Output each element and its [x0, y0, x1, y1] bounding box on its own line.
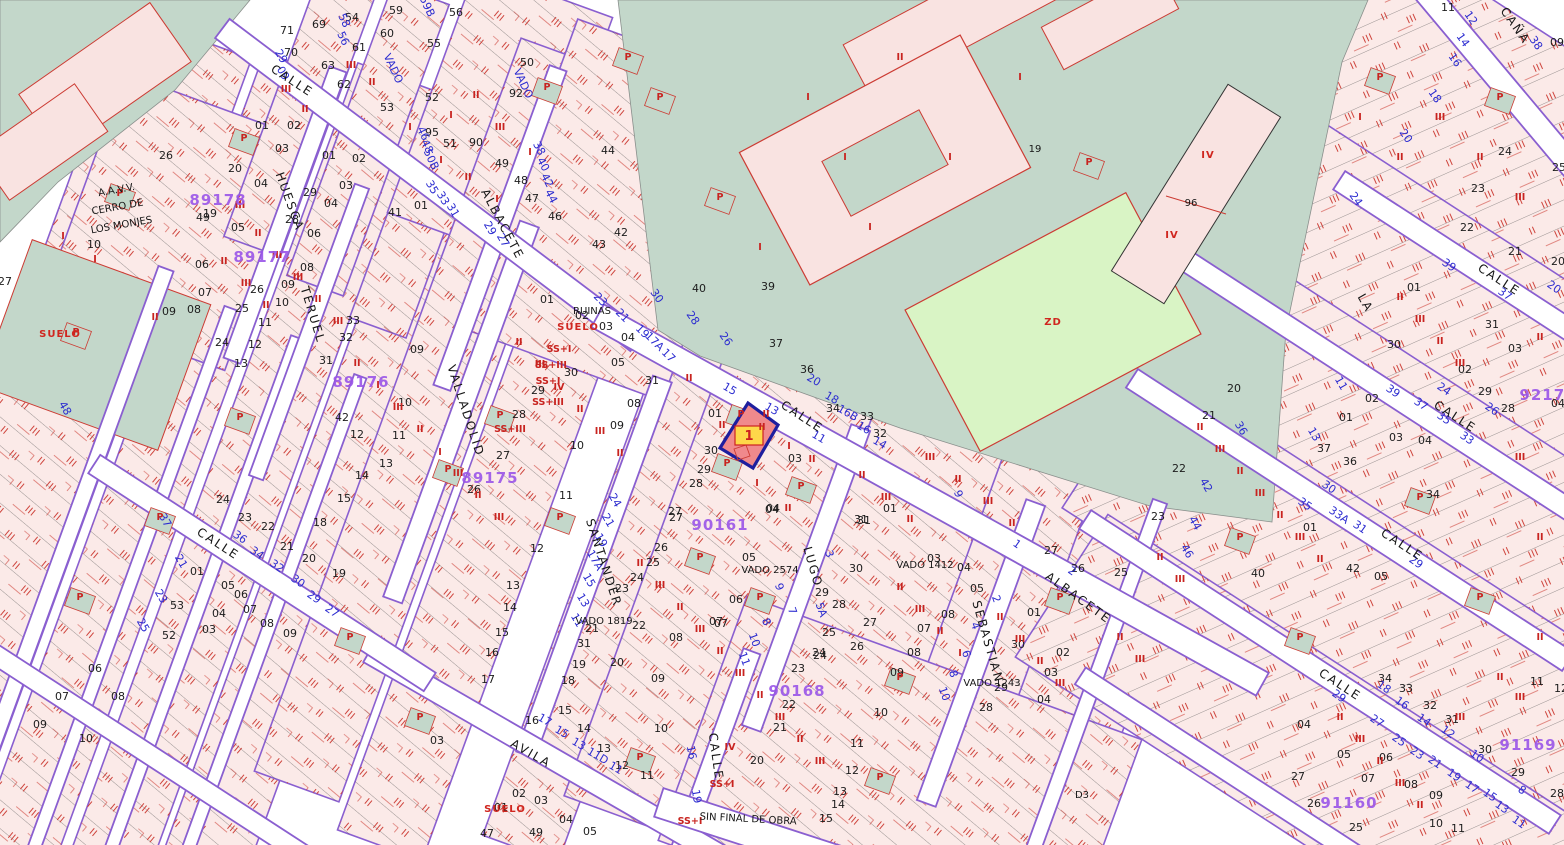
floor-count-label: III [293, 272, 304, 283]
floor-count-label: III [1515, 452, 1526, 463]
block-id-label: 89177 [233, 248, 290, 266]
parcel-number-label: 13 [234, 357, 248, 370]
parcel-number-label: 19 [332, 567, 346, 580]
floor-count-label: II [220, 256, 227, 267]
parcel-number-label: 12 [350, 428, 364, 441]
floor-count-label: III [1255, 488, 1266, 499]
parcel-number-label: 03 [1508, 342, 1522, 355]
floor-count-label: SS+III [532, 397, 564, 408]
parcel-number-label: 21 [1202, 409, 1216, 422]
parcel-number-label: 42 [335, 411, 349, 424]
parcel-number-label: 30 [1387, 338, 1401, 351]
floor-count-label: II [464, 172, 471, 183]
floor-count-label: I [787, 441, 791, 452]
parcel-number-label: 31 [1485, 318, 1499, 331]
parcel-number-label: 03 [430, 734, 444, 747]
parcel-number-label: 09 [410, 343, 424, 356]
floor-count-label: II [758, 422, 765, 433]
floor-count-label: I [806, 92, 810, 103]
floor-count-label: II [1196, 422, 1203, 433]
parcel-number-label: 23 [1151, 510, 1165, 523]
block-id-label: 89176 [332, 373, 389, 391]
parcel-number-label: 05 [583, 825, 597, 838]
parcel-number-label: 24 [216, 493, 230, 506]
floor-count-label: I [528, 147, 532, 158]
parcel-number-label: 10 [79, 732, 93, 745]
parcel-number-label: 14 [503, 601, 517, 614]
parcel-number-label: 10 [87, 238, 101, 251]
floor-count-label: II [756, 690, 763, 701]
parcel-number-label: 08 [1404, 778, 1418, 791]
parcel-number-label: 07 [55, 690, 69, 703]
floor-count-label: III [346, 60, 357, 71]
parcel-number-label: 26 [654, 541, 668, 554]
floor-count-label: P [1497, 92, 1504, 103]
floor-count-label: II [1476, 152, 1483, 163]
parcel-number-label: 31 [577, 637, 591, 650]
parcel-number-label: 49 [196, 211, 210, 224]
floor-count-label: P [1417, 492, 1424, 503]
floor-count-label: II [474, 490, 481, 501]
floor-count-label: P [657, 92, 664, 103]
parcel-number-label: 07 [1361, 772, 1375, 785]
parcel-number-label: 26 [1307, 797, 1321, 810]
floor-count-label: II [515, 337, 522, 348]
floor-count-label: I [449, 110, 453, 121]
parcel-number-label: 11 [258, 316, 272, 329]
floor-count-label: III [494, 512, 505, 523]
parcel-number-label: 24 [813, 649, 827, 662]
parcel-number-label: 40 [1251, 567, 1265, 580]
parcel-number-label: 33 [346, 314, 360, 327]
parcel-number-label: 04 [559, 813, 573, 826]
floor-count-label: II [896, 582, 903, 593]
parcel-number-label: 42 [614, 226, 628, 239]
block-id-label: 91160 [1320, 794, 1377, 812]
parcel-number-label: 23 [1471, 182, 1485, 195]
parcel-number-label: 21 [280, 540, 294, 553]
parcel-number-label: 23 [238, 511, 252, 524]
special-red-label: SUELO [39, 329, 81, 340]
parcel-number-label: 22 [261, 520, 275, 533]
parcel-number-label: 06 [729, 593, 743, 606]
street-number-label: 16 [684, 744, 699, 760]
floor-count-label: II [1536, 332, 1543, 343]
parcel-number-label: 25 [646, 556, 660, 569]
floor-count-label: II [1236, 466, 1243, 477]
floor-count-label: II [1336, 712, 1343, 723]
floor-count-label: IV [725, 742, 737, 753]
floor-count-label: I [438, 447, 442, 458]
floor-count-label: I [958, 648, 962, 659]
parcel-number-label: 25 [822, 626, 836, 639]
parcel-number-label: 08 [187, 303, 201, 316]
special-red-label: SUELO [557, 322, 599, 333]
floor-count-label: P [625, 52, 632, 63]
parcel-number-label: 56 [449, 6, 463, 19]
parcel-number-label: 10 [275, 296, 289, 309]
parcel-number-label: 31 [645, 374, 659, 387]
floor-count-label: II [353, 358, 360, 369]
parcel-number-label: 03 [275, 142, 289, 155]
floor-count-label: II [1396, 152, 1403, 163]
special-red-label: SUELO [484, 804, 526, 815]
parcel-number-label: 08 [111, 690, 125, 703]
parcel-number-label: 11 [1451, 822, 1465, 835]
parcel-number-label: 59 [389, 4, 403, 17]
floor-count-label: I [868, 222, 872, 233]
parcel-number-label: 25 [1552, 161, 1564, 174]
parcel-number-label: 01 [1027, 606, 1041, 619]
parcel-number-label: 05 [231, 221, 245, 234]
parcel-number-label: 28 [512, 408, 526, 421]
floor-count-label: I [93, 254, 97, 265]
floor-count-label: II [676, 602, 683, 613]
parcel-number-label: 11 [640, 769, 654, 782]
parcel-number-label: 48 [514, 174, 528, 187]
parcel-number-label: 02 [512, 787, 526, 800]
parcel-number-label: 31 [857, 514, 871, 527]
map-annotation-label: VADO 1243 [963, 678, 1020, 689]
floor-count-label: II [1156, 552, 1163, 563]
parcel-number-label: 09 [33, 718, 47, 731]
floor-count-label: P [798, 481, 805, 492]
block-id-label: 92170 [1519, 386, 1564, 404]
parcel-number-label: 40 [692, 282, 706, 295]
special-red-label: IV [1165, 230, 1178, 241]
floor-count-label: P [77, 592, 84, 603]
parcel-number-label: 07 [243, 603, 257, 616]
parcel-number-label: 26 [250, 283, 264, 296]
parcel-number-label: 44 [601, 144, 615, 157]
parcel-number-label: 25 [1349, 821, 1363, 834]
floor-count-label: III [1515, 192, 1526, 203]
parcel-number-label: 26 [159, 149, 173, 162]
floor-count-label: P [724, 458, 731, 469]
parcel-number-label: 18 [561, 674, 575, 687]
parcel-number-label: 01 [414, 199, 428, 212]
floor-count-label: SS+III [535, 360, 567, 371]
floor-count-label: II [1036, 656, 1043, 667]
parcel-number-label: 06 [195, 258, 209, 271]
parcel-number-label: 20 [302, 552, 316, 565]
parcel-number-label: 61 [352, 41, 366, 54]
floor-count-label: II [1496, 672, 1503, 683]
floor-count-label: II [1276, 510, 1283, 521]
floor-count-label: II [636, 558, 643, 569]
floor-count-label: I [948, 152, 952, 163]
parcel-number-label: 37 [769, 337, 783, 350]
block-id-label: 91169 [1499, 736, 1556, 754]
parcel-number-label: 21 [1508, 245, 1522, 258]
floor-count-label: II [1316, 554, 1323, 565]
floor-count-label: III [1215, 444, 1226, 455]
parcel-number-label: 20 [610, 656, 624, 669]
parcel-number-label: 01 [322, 149, 336, 162]
parcel-number-label: 11 [559, 489, 573, 502]
parcel-number-label: 29 [303, 186, 317, 199]
special-red-label: IV [1201, 150, 1214, 161]
map-annotation-label: RUINAS [573, 306, 611, 317]
floor-count-label: II [616, 448, 623, 459]
floor-count-label: II [262, 300, 269, 311]
parcel-number-label: 05 [611, 356, 625, 369]
floor-count-label: P [237, 412, 244, 423]
parcel-number-label: 09 [283, 627, 297, 640]
floor-count-label: P [877, 772, 884, 783]
parcel-number-label: 47 [525, 192, 539, 205]
parcel-number-label: 17 [481, 673, 495, 686]
parcel-number-label: 02 [1365, 392, 1379, 405]
parcel-number-label: 20 [1227, 382, 1241, 395]
parcel-number-label: 15 [337, 492, 351, 505]
floor-count-label: III [393, 402, 404, 413]
parcel-number-label: 04 [324, 197, 338, 210]
parcel-number-label: 08 [627, 397, 641, 410]
parcel-number-label: 09 [162, 305, 176, 318]
parcel-number-label: 01 [708, 407, 722, 420]
parcel-number-label: 37 [1317, 442, 1331, 455]
parcel-number-label: 27 [863, 616, 877, 629]
floor-count-label: III [695, 624, 706, 635]
floor-count-label: II [716, 646, 723, 657]
parcel-number-label: 12 [248, 338, 262, 351]
parcel-number-label: 11 [1530, 675, 1544, 688]
floor-count-label: III [1295, 532, 1306, 543]
floor-count-label: III [815, 756, 826, 767]
floor-count-label: P [1086, 157, 1093, 168]
floor-count-label: III [1415, 314, 1426, 325]
parcel-number-label: 63 [321, 59, 335, 72]
floor-count-label: III [1355, 734, 1366, 745]
selected-parcel-number: 1 [744, 429, 753, 444]
map-annotation-label: VADO 1819 [575, 616, 632, 627]
parcel-number-label: 29 [815, 586, 829, 599]
map-annotation-label: VADO 2574 [741, 565, 798, 576]
parcel-number-label: 15 [558, 704, 572, 717]
floor-count-label: P [697, 552, 704, 563]
parcel-number-label: 11 [392, 429, 406, 442]
cadastral-map[interactable]: 1 01302928270304363332340131262004190510… [0, 0, 1564, 845]
parcel-number-label: 18 [313, 516, 327, 529]
parcel-number-label: 28 [1501, 402, 1515, 415]
floor-count-label: II [151, 312, 158, 323]
parcel-number-label: 25 [235, 302, 249, 315]
parcel-number-label: 32 [1423, 699, 1437, 712]
parcel-number-label: 25 [1114, 566, 1128, 579]
floor-count-label: I [408, 122, 412, 133]
floor-count-label: III [241, 278, 252, 289]
floor-count-label: II [576, 404, 583, 415]
parcel-number-label: 03 [599, 320, 613, 333]
floor-count-label: II [784, 503, 791, 514]
parcel-number-label: 27 [496, 449, 510, 462]
parcel-number-label: 09 [1550, 36, 1564, 49]
parcel-number-label: 02 [287, 119, 301, 132]
floor-count-label: II [1376, 756, 1383, 767]
floor-count-label: P [1237, 532, 1244, 543]
floor-count-label: III [735, 668, 746, 679]
parcel-number-label: 27 [1291, 770, 1305, 783]
floor-count-label: II [808, 454, 815, 465]
map-annotation-label: D3 [1075, 790, 1089, 801]
floor-count-label: II [718, 420, 725, 431]
parcel-number-label: 02 [1056, 646, 1070, 659]
parcel-number-label: 08 [260, 617, 274, 630]
floor-count-label: III [1455, 358, 1466, 369]
parcel-number-label: 01 [255, 119, 269, 132]
parcel-number-label: 03 [339, 179, 353, 192]
parcel-number-label: 06 [88, 662, 102, 675]
parcel-number-label: 33 [1399, 682, 1413, 695]
parcel-number-label: 12 [1554, 682, 1564, 695]
floor-count-label: II [996, 612, 1003, 623]
special-red-label: ZD [1044, 317, 1062, 328]
parcel-number-label: 05 [221, 579, 235, 592]
floor-count-label: II [472, 90, 479, 101]
parcel-number-label: 05 [1337, 748, 1351, 761]
parcel-number-label: 24 [215, 336, 229, 349]
floor-count-label: II [301, 104, 308, 115]
floor-count-label: III [915, 604, 926, 615]
parcel-number-label: 01 [883, 502, 897, 515]
floor-count-label: I [439, 155, 443, 166]
block-id-label: 89175 [461, 469, 518, 487]
parcel-number-label: 60 [380, 27, 394, 40]
parcel-number-label: 42 [1346, 562, 1360, 575]
floor-count-label: I [61, 231, 65, 242]
parcel-number-label: 71 [280, 24, 294, 37]
parcel-number-label: 04 [1037, 693, 1051, 706]
parcel-number-label: 01 [190, 565, 204, 578]
parcel-number-label: 27 [1044, 544, 1058, 557]
parcel-number-label: 01 [1407, 281, 1421, 294]
parcel-number-label: 20 [750, 754, 764, 767]
floor-count-label: II [685, 373, 692, 384]
parcel-number-label: 52 [425, 91, 439, 104]
parcel-number-label: 01 [1339, 411, 1353, 424]
parcel-number-label: 06 [307, 227, 321, 240]
parcel-number-label: 43 [592, 238, 606, 251]
parcel-number-label: 13 [506, 579, 520, 592]
floor-count-label: III [595, 426, 606, 437]
floor-count-label: II [1008, 518, 1015, 529]
floor-count-label: II [1416, 800, 1423, 811]
parcel-number-label: 12 [845, 764, 859, 777]
floor-count-label: P [544, 82, 551, 93]
parcel-number-label: 28 [1550, 787, 1564, 800]
parcel-number-label: 29 [1478, 385, 1492, 398]
parcel-number-label: 39 [761, 280, 775, 293]
parcel-number-label: 04 [957, 561, 971, 574]
parcel-number-label: 69 [312, 18, 326, 31]
floor-count-label: P [1477, 592, 1484, 603]
parcel-number-label: 24 [1498, 145, 1512, 158]
floor-count-label: III [1015, 634, 1026, 645]
floor-count-label: P [557, 512, 564, 523]
parcel-number-label: 90 [469, 136, 483, 149]
parcel-number-label: 04 [254, 177, 268, 190]
floor-count-label: II [1536, 632, 1543, 643]
parcel-number-label: 06 [234, 588, 248, 601]
floor-count-label: P [445, 464, 452, 475]
parcel-number-label: 05 [970, 582, 984, 595]
floor-count-label: II [762, 409, 769, 420]
block-id-label: 90168 [768, 682, 825, 700]
parcel-number-label: 28 [689, 477, 703, 490]
floor-count-label: III [1395, 778, 1406, 789]
parcel-number-label: 07 [709, 615, 723, 628]
parcel-number-label: 14 [831, 798, 845, 811]
floor-count-label: II [906, 514, 913, 525]
parcel-number-label: 10 [874, 706, 888, 719]
parcel-number-label: 02 [352, 152, 366, 165]
parcel-number-label: 19 [572, 658, 586, 671]
parcel-number-label: 55 [427, 37, 441, 50]
floor-count-label: P [347, 632, 354, 643]
parcel-number-label: 04 [1297, 718, 1311, 731]
floor-count-label: I [755, 478, 759, 489]
parcel-number-label: 15 [819, 812, 833, 825]
floor-count-label: II [1396, 292, 1403, 303]
floor-count-label: III [1175, 574, 1186, 585]
parcel-number-label: 23 [791, 662, 805, 675]
parcel-number-label: 36 [1343, 455, 1357, 468]
floor-count-label: II [796, 734, 803, 745]
parcel-number-label: 31 [319, 354, 333, 367]
parcel-number-label: 11 [1441, 1, 1455, 14]
parcel-number-label: 49 [495, 157, 509, 170]
parcel-number-label: 10 [570, 439, 584, 452]
parcel-number-label: 03 [202, 623, 216, 636]
floor-count-label: III [881, 492, 892, 503]
parcel-number-label: 29 [1511, 766, 1525, 779]
parcel-number-label: 46 [548, 210, 562, 223]
floor-count-label: II [896, 52, 903, 63]
floor-count-label: II [858, 470, 865, 481]
parcel-number-label: 26 [850, 640, 864, 653]
cadastral-map-viewport[interactable]: 1 01302928270304363332340131262004190510… [0, 0, 1564, 845]
parcel-number-label: 10 [654, 722, 668, 735]
floor-count-label: II [1116, 632, 1123, 643]
parcel-number-label: 03 [1389, 431, 1403, 444]
parcel-number-label: 22 [632, 619, 646, 632]
floor-count-label: III [1055, 678, 1066, 689]
parcel-number-label: 09 [1429, 789, 1443, 802]
parcel-number-label: 27 [669, 511, 683, 524]
floor-count-label: P [637, 752, 644, 763]
floor-count-label: P [757, 592, 764, 603]
floor-count-label: III [775, 712, 786, 723]
parcel-number-label: 08 [907, 646, 921, 659]
parcel-number-label: 08 [941, 608, 955, 621]
floor-count-label: P [497, 410, 504, 421]
floor-count-label: P [417, 712, 424, 723]
floor-count-label: P [738, 409, 745, 420]
floor-count-label: III [925, 452, 936, 463]
floor-count-label: II [1536, 532, 1543, 543]
parcel-number-label: 07 [917, 622, 931, 635]
floor-count-label: I [1018, 72, 1022, 83]
parcel-number-label: 34 [1426, 488, 1440, 501]
floor-count-label: III [655, 580, 666, 591]
floor-count-label: III [1135, 654, 1146, 665]
parcel-number-label: 27 [0, 275, 12, 288]
parcel-number-label: 52 [162, 629, 176, 642]
parcel-number-label: 41 [388, 206, 402, 219]
parcel-number-label: 03 [534, 794, 548, 807]
floor-count-label: II [954, 474, 961, 485]
